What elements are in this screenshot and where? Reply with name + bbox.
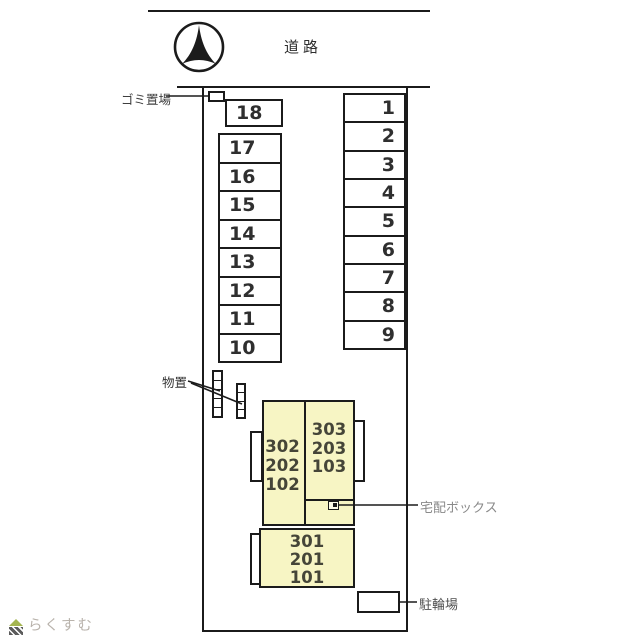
parking-stall-15: 15 xyxy=(220,190,280,219)
unit-south-numbers: 301 201 101 xyxy=(259,533,355,587)
parking-stall-16: 16 xyxy=(220,162,280,191)
parking-stall-14: 14 xyxy=(220,219,280,248)
parking-stall-2: 2 xyxy=(345,121,404,149)
delivery-box-label: 宅配ボックス xyxy=(420,497,498,516)
parking-stall-5: 5 xyxy=(345,206,404,234)
parking-stall-13: 13 xyxy=(220,247,280,276)
parking-stall-17: 17 xyxy=(220,135,280,162)
parking-stall-12: 12 xyxy=(220,276,280,305)
parking-stall-1: 1 xyxy=(345,95,404,121)
north-arrow-icon xyxy=(172,20,226,74)
unit-east-numbers: 303 203 103 xyxy=(304,421,354,477)
storage-shed-2 xyxy=(236,383,246,419)
parking-stall-3: 3 xyxy=(345,150,404,178)
parking-stall-7: 7 xyxy=(345,263,404,291)
site-boundary-bottom xyxy=(202,630,408,632)
balcony-west xyxy=(250,431,263,482)
road-label: 道路 xyxy=(284,36,322,57)
parking-stall-8: 8 xyxy=(345,291,404,319)
site-boundary-top xyxy=(177,86,430,88)
balcony-east xyxy=(353,420,365,482)
watermark: らくすむ xyxy=(9,614,94,635)
unit-west-numbers: 302 202 102 xyxy=(262,437,303,494)
site-plan: 道路 ゴミ置場 18 17 16 15 14 13 12 11 10 1 2 3… xyxy=(0,0,640,640)
delivery-box-icon xyxy=(328,501,339,510)
parking-stall-6: 6 xyxy=(345,235,404,263)
parking-stall-18: 18 xyxy=(225,99,283,127)
garbage-area-box xyxy=(208,91,225,102)
parking-stall-9: 9 xyxy=(345,320,404,348)
parking-stall-10: 10 xyxy=(220,333,280,362)
balcony-south xyxy=(250,533,261,585)
parking-column-right: 1 2 3 4 5 6 7 8 9 xyxy=(343,93,406,350)
bicycle-parking-box xyxy=(357,591,400,613)
storage-label: 物置 xyxy=(162,372,187,391)
watermark-text: らくすむ xyxy=(28,614,94,635)
parking-column-left: 17 16 15 14 13 12 11 10 xyxy=(218,133,282,363)
stall-number: 18 xyxy=(236,102,262,124)
site-boundary-right xyxy=(406,86,408,632)
bicycle-parking-label: 駐輪場 xyxy=(419,594,458,613)
parking-stall-11: 11 xyxy=(220,304,280,333)
site-boundary-left xyxy=(202,86,204,632)
garbage-area-label: ゴミ置場 xyxy=(121,89,171,108)
road-edge-line xyxy=(148,10,430,12)
storage-shed-1 xyxy=(212,370,223,418)
house-logo-icon xyxy=(9,619,24,635)
parking-stall-4: 4 xyxy=(345,178,404,206)
